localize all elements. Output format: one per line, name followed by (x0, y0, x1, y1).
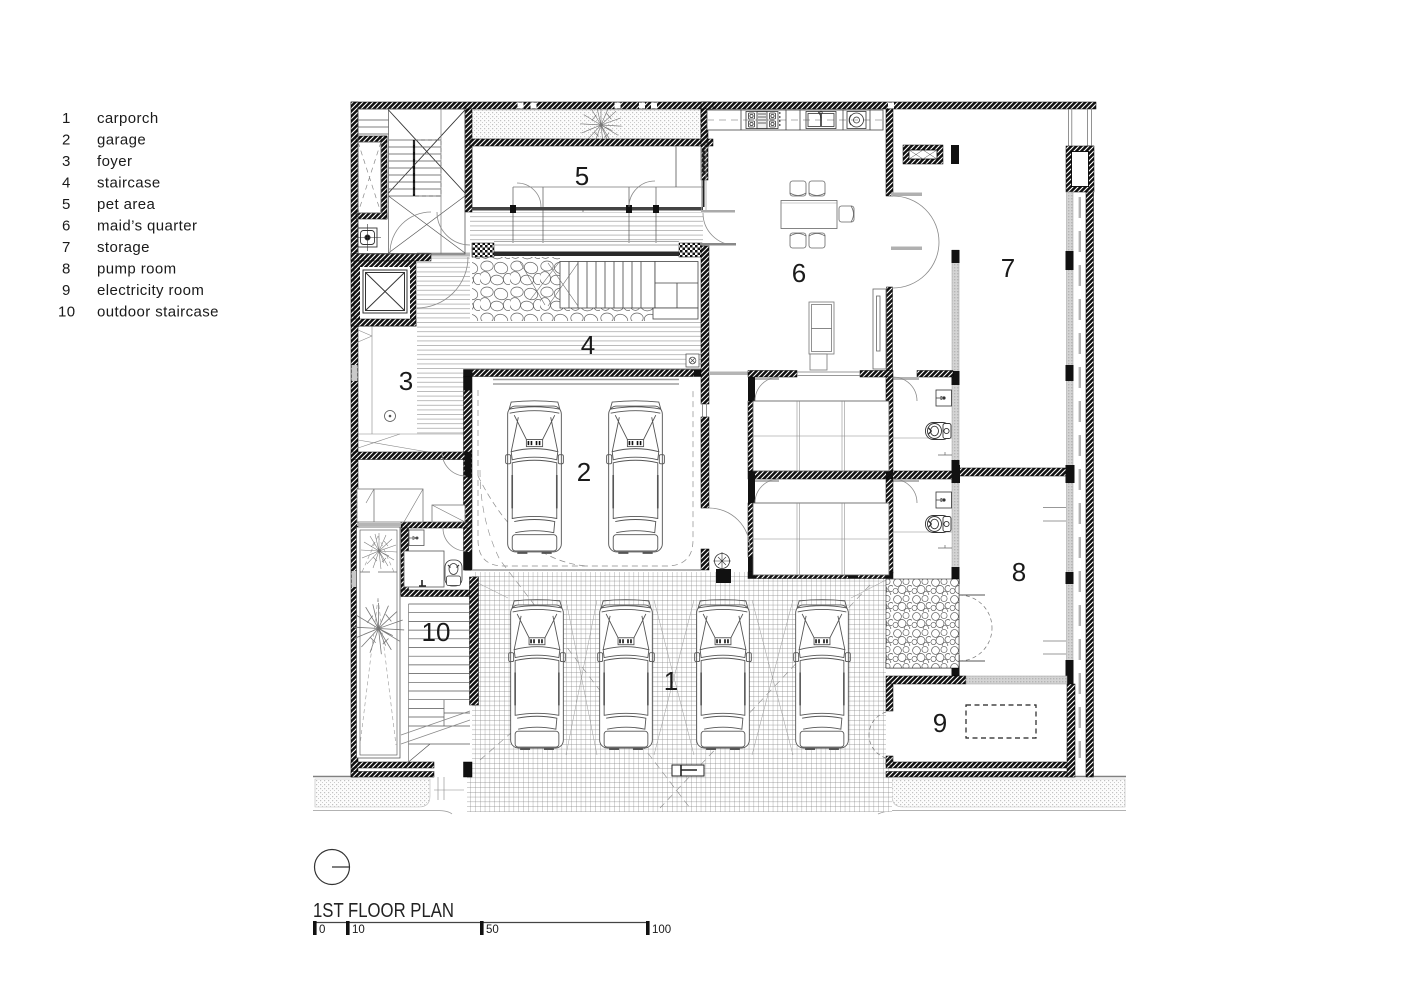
svg-text:maid’s quarter: maid’s quarter (97, 218, 197, 235)
svg-text:100: 100 (652, 924, 671, 936)
svg-text:4: 4 (62, 175, 71, 192)
svg-text:2: 2 (62, 132, 71, 149)
svg-text:5: 5 (62, 196, 71, 213)
svg-text:7: 7 (62, 239, 71, 256)
svg-text:pump room: pump room (97, 261, 176, 278)
svg-text:electricity room: electricity room (97, 282, 204, 299)
svg-text:foyer: foyer (97, 153, 132, 170)
svg-text:4: 4 (581, 330, 595, 360)
svg-text:3: 3 (399, 366, 413, 396)
svg-text:10: 10 (422, 617, 451, 647)
svg-text:staircase: staircase (97, 175, 161, 192)
svg-text:5: 5 (575, 161, 589, 191)
svg-text:outdoor staircase: outdoor staircase (97, 304, 219, 321)
svg-text:pet area: pet area (97, 196, 155, 213)
svg-text:1ST FLOOR PLAN: 1ST FLOOR PLAN (313, 900, 454, 922)
svg-text:8: 8 (1012, 557, 1026, 587)
svg-text:50: 50 (486, 924, 499, 936)
svg-text:9: 9 (933, 708, 947, 738)
svg-text:1: 1 (62, 110, 71, 127)
svg-text:carporch: carporch (97, 110, 159, 127)
svg-text:6: 6 (792, 258, 806, 288)
svg-text:garage: garage (97, 132, 146, 149)
svg-text:6: 6 (62, 218, 71, 235)
svg-text:3: 3 (62, 153, 71, 170)
svg-text:10: 10 (352, 924, 365, 936)
svg-text:10: 10 (58, 304, 76, 321)
svg-text:storage: storage (97, 239, 150, 256)
svg-text:9: 9 (62, 282, 71, 299)
svg-text:7: 7 (1001, 253, 1015, 283)
svg-text:0: 0 (319, 924, 325, 936)
svg-text:1: 1 (664, 666, 678, 696)
svg-text:2: 2 (577, 457, 591, 487)
svg-text:8: 8 (62, 261, 71, 278)
